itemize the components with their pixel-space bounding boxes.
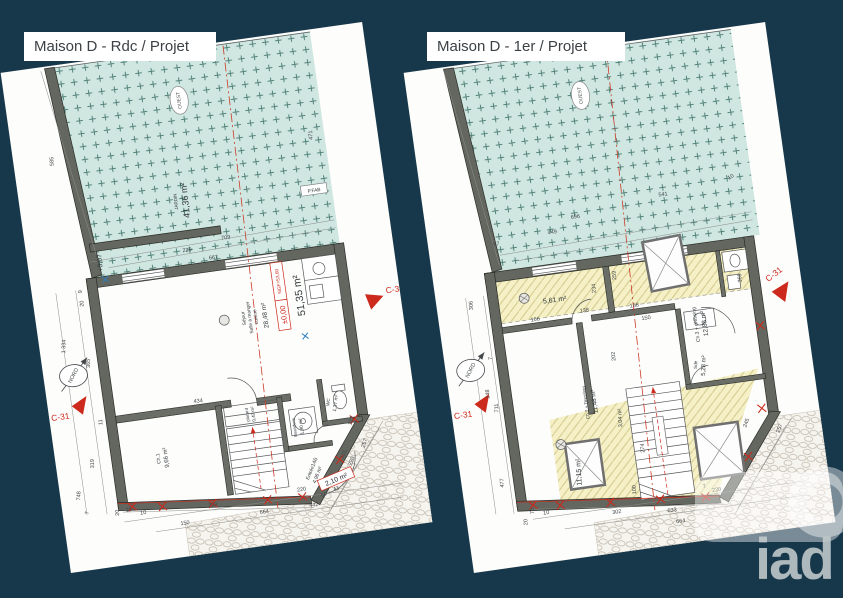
nord-marker: NORD [455,352,489,386]
dimension-label: 259 [612,271,619,281]
plan-sheet-rdc: JARDIN 41,36 m² +0,07 P.FAB Séjour Salle… [1,22,433,573]
dimension-label: 229 [182,247,192,254]
dimension-label: 20 [115,510,121,516]
dimension-label: 369 [737,273,744,283]
room-area-1115: 11,15 m² [575,458,583,486]
dimension-label: 7 [488,357,494,360]
dimension-label: 100 [632,485,639,495]
dimension-label: 306 [469,301,475,310]
svg-text:C-31: C-31 [453,409,473,422]
garden-area [44,31,339,280]
dimension-label: 471 [308,130,314,139]
svg-text:WC: WC [325,397,331,406]
dimension-label: 245 [742,418,751,429]
dimension-label: 10 [140,510,147,517]
dimension-label: 158 [629,302,639,309]
dimension-label: 633 [667,507,677,514]
svg-text:28,48 m²: 28,48 m² [260,301,271,328]
svg-text:C-31: C-31 [385,283,405,296]
room-area-304: 3,04 m² [617,408,624,427]
dimension-label: 150 [180,520,190,527]
dimension-label: 138 [580,307,590,314]
level-symbol-main [302,333,309,340]
dimension-label: 220 [712,487,722,494]
dimension-label: 150 [641,315,651,322]
plan-sheet-1er: 5,61 m² Ch.3 + dressing 12,88 m² Ch.2 + … [404,22,836,573]
dimension-label: 10 [543,510,550,517]
level-box: ±0,00 NGF=53,60 [270,262,291,331]
section-marker-left: C-31 [49,396,90,423]
dimension-label: 667 [209,254,219,261]
svg-text:0,49 m²: 0,49 m² [249,406,256,422]
dimension-label: 7 [702,484,706,490]
room-label-ch1: Ch.1 9,66 m² [154,447,171,469]
main-room-label: Séjour Salle à manger cuisine 28,48 m² [239,298,271,334]
kitchen-unit [301,254,341,304]
dimension-label: 20 [523,519,529,525]
plan-title-1er: Maison D - 1er / Projet [427,32,625,61]
dimension-label: 274 [640,443,647,453]
staircase [226,421,289,494]
dimension-label: 9 [78,290,84,293]
svg-text:5,28 m²: 5,28 m² [701,355,708,376]
dimension-label: 1 334 [61,339,67,353]
watermark-brand-text: iad [755,526,833,593]
plan-drawing-1er: 5,61 m² Ch.3 + dressing 12,88 m² Ch.2 + … [404,22,836,573]
dimension-label: 477 [500,478,506,487]
svg-text:1,37 m²: 1,37 m² [332,394,340,412]
floor-plan-page: JARDIN 41,36 m² +0,07 P.FAB Séjour Salle… [0,0,843,598]
dimension-label: 220 [297,486,307,493]
dimension-label: 70 [530,508,536,514]
dimension-label: 234 [591,284,598,294]
dimension-label: 541 [658,191,668,198]
svg-text:Ch.1: Ch.1 [155,453,162,465]
dimension-label: 434 [193,398,203,405]
dimension-label: 302 [612,509,622,516]
dimension-label: 664 [259,509,269,516]
room-label-placard: placard 0,49 m² [244,406,257,423]
red-cross-mark [757,404,766,413]
section-marker-right: C-31 [364,283,406,310]
dimension-label: 696 [570,214,580,221]
dimension-label: 299 [208,502,218,509]
dimension-label: 664 [676,518,686,525]
dimension-label: 10 [125,507,132,514]
terrace-area [444,29,760,275]
svg-text:Sde: Sde [693,360,698,369]
dimension-label: 709 [221,235,231,242]
dimension-label: 7 [85,511,91,514]
section-marker-right: C-31 [762,263,791,304]
dimension-label: 11 [98,419,104,425]
dimension-label: 319 [90,459,96,468]
dimension-label: 585 [49,157,55,166]
dimension-label: 202 [611,351,618,361]
dimension-label: 148 [485,389,491,398]
dimension-label: 67 [493,241,500,248]
svg-text:C-31: C-31 [50,411,70,424]
dimension-label: 20 [79,300,85,306]
dimension-label: 711 [494,404,500,413]
svg-text:9,66 m²: 9,66 m² [162,447,171,468]
dimension-label: 442 [309,502,319,509]
svg-text:C-31: C-31 [763,264,784,283]
dimension-label: 449 [547,229,557,236]
column [219,314,230,325]
plan-title-rdc: Maison D - Rdc / Projet [24,32,216,61]
dimension-label: 365 [86,359,92,368]
plan-drawing-rdc: JARDIN 41,36 m² +0,07 P.FAB Séjour Salle… [1,22,433,573]
dimension-label: 166 [530,316,540,323]
dimension-label: 748 [76,491,82,500]
